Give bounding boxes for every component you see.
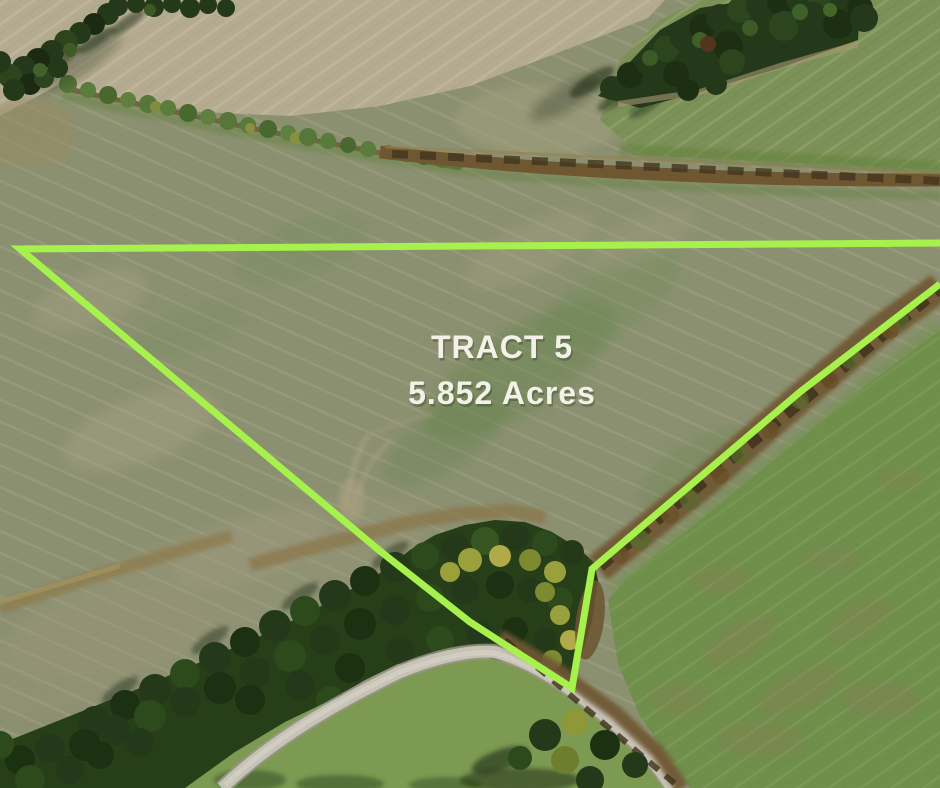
aerial-tract-photo: TRACT 5 5.852 Acres TRACT 5 5.852 Acres — [0, 0, 940, 788]
tract-title: TRACT 5 — [431, 329, 573, 365]
tract-acreage: 5.852 Acres — [408, 375, 596, 411]
aerial-scene: TRACT 5 5.852 Acres TRACT 5 5.852 Acres — [0, 0, 940, 788]
